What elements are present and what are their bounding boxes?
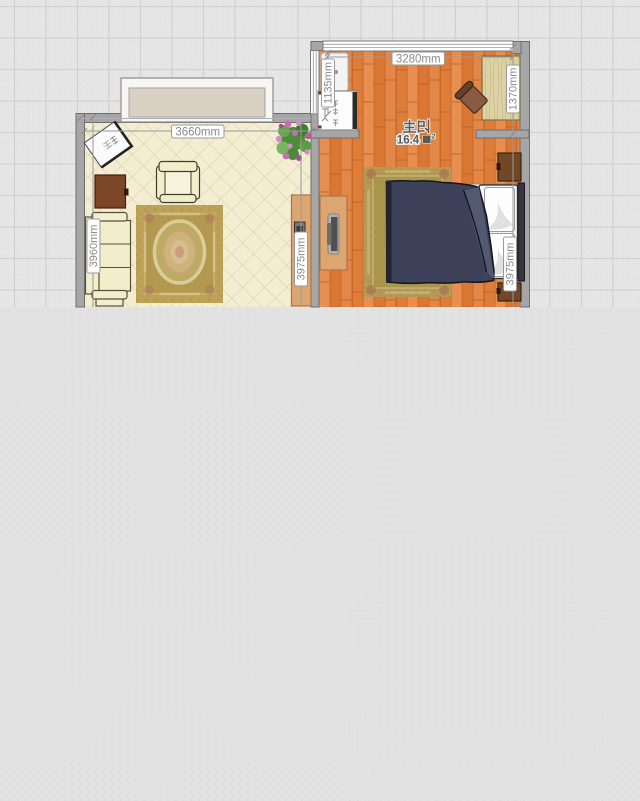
svg-text:3660mm: 3660mm: [175, 127, 220, 139]
svg-text:3280mm: 3280mm: [396, 54, 441, 66]
svg-text:3975mm: 3975mm: [505, 243, 517, 286]
svg-text:3960mm: 3960mm: [88, 225, 100, 268]
svg-text:3975mm: 3975mm: [296, 238, 308, 281]
svg-text:1370mm: 1370mm: [508, 68, 520, 111]
svg-text:1135mm: 1135mm: [323, 62, 335, 104]
svg-text:16.4: 16.4: [397, 135, 420, 147]
svg-text:2: 2: [432, 134, 436, 141]
